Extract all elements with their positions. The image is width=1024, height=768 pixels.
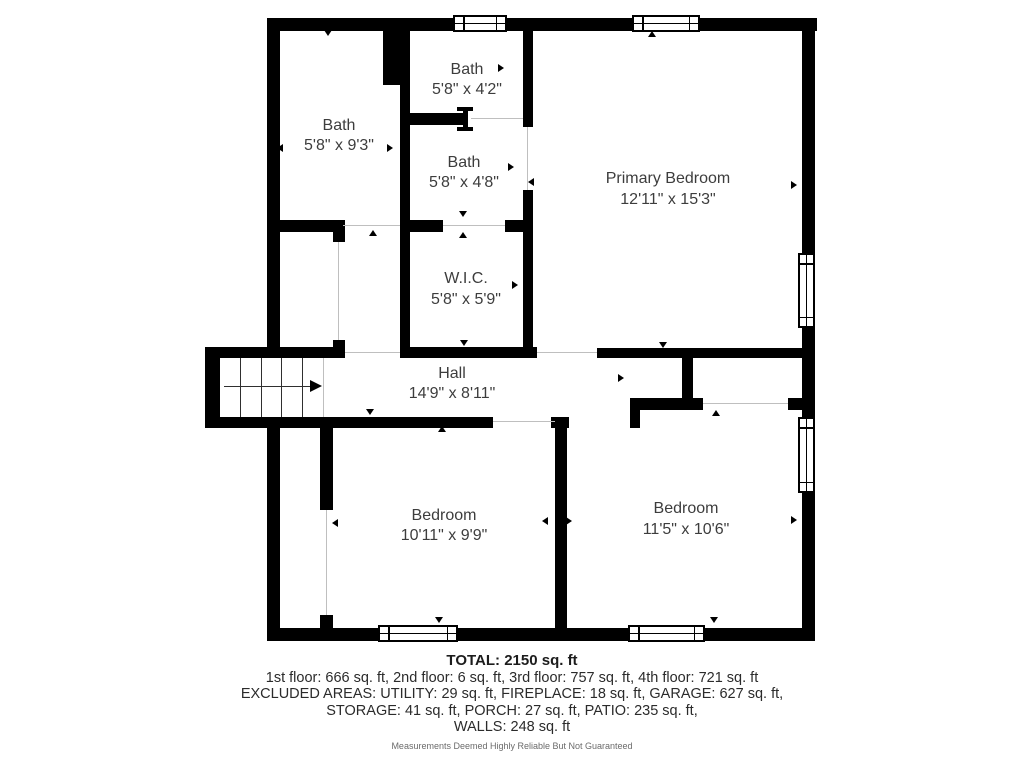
room-dimensions: 10'11" x 9'9" [364, 526, 524, 546]
door-threshold-line [345, 352, 400, 353]
room-name: Bath [387, 60, 547, 80]
room-name: W.I.C. [386, 268, 546, 289]
window-pane-line [380, 633, 456, 634]
room-dimensions: 5'8" x 4'8" [384, 173, 544, 193]
room-label-bedroom-right: Bedroom 11'5" x 10'6" [606, 498, 766, 540]
room-dimensions: 5'8" x 5'9" [386, 289, 546, 310]
stair-direction-arrow-icon [310, 380, 322, 392]
room-name: Bedroom [606, 498, 766, 519]
window-pane-line [630, 633, 703, 634]
room-name: Hall [372, 364, 532, 384]
stair-edge-line [323, 358, 324, 417]
door-threshold-line [703, 403, 788, 404]
arrow-marker-icon [791, 181, 797, 189]
window-frame-line [447, 627, 449, 640]
room-label-hall: Hall 14'9" x 8'11" [372, 364, 532, 404]
arrow-marker-icon [369, 230, 377, 236]
wall-left-upper [267, 18, 280, 347]
arrow-marker-icon [435, 617, 443, 623]
arrow-marker-icon [366, 409, 374, 415]
door-threshold-line [343, 225, 400, 226]
wall-bedroom-bl-west [320, 420, 333, 510]
door-jamb-bar [463, 107, 468, 131]
window-frame-line [496, 17, 498, 30]
wall-right [802, 18, 815, 641]
arrow-marker-icon [618, 374, 624, 382]
room-dimensions: 14'9" x 8'11" [372, 384, 532, 404]
window-frame-line [689, 17, 691, 30]
door-threshold-line [537, 352, 597, 353]
room-label-bedroom-left: Bedroom 10'11" x 9'9" [364, 506, 524, 546]
door-threshold-line [338, 242, 339, 340]
door-threshold-line [471, 118, 523, 119]
room-dimensions: 5'8" x 4'2" [387, 80, 547, 100]
window-symbol [798, 417, 815, 493]
window-symbol [378, 625, 458, 642]
excluded-areas-text-3: WALLS: 248 sq. ft [0, 719, 1024, 735]
wall-closet-br-south [630, 398, 703, 410]
arrow-marker-icon [542, 517, 548, 525]
staircase [220, 358, 323, 417]
arrow-marker-icon [648, 31, 656, 37]
area-summary: TOTAL: 2150 sq. ft 1st floor: 666 sq. ft… [0, 652, 1024, 751]
door-threshold-line [443, 225, 505, 226]
room-dimensions: 11'5" x 10'6" [606, 519, 766, 540]
wall-closet-jamb-top [333, 220, 345, 242]
arrow-marker-icon [710, 617, 718, 623]
wall-stair-west [205, 347, 220, 428]
room-label-bath-middle: Bath 5'8" x 4'8" [384, 153, 544, 193]
window-frame-line [638, 627, 640, 640]
room-label-bath-left: Bath 5'8" x 9'3" [259, 116, 419, 156]
stair-tread-line [302, 358, 303, 417]
wall-closet-jamb-bottom [333, 340, 345, 358]
window-symbol [453, 15, 507, 32]
window-symbol [628, 625, 705, 642]
door-threshold-line [326, 510, 327, 615]
room-name: Bath [259, 116, 419, 136]
arrow-marker-icon [459, 211, 467, 217]
floor-plan: Bath 5'8" x 9'3" Bath 5'8" x 4'2" Bath 5… [0, 0, 1024, 768]
arrow-marker-icon [324, 30, 332, 36]
arrow-marker-icon [459, 232, 467, 238]
stair-direction-line [224, 386, 310, 387]
window-symbol [632, 15, 700, 32]
wall-bath-wic-west [403, 220, 443, 232]
room-dimensions: 12'11" x 15'3" [568, 189, 768, 210]
window-frame-line [800, 427, 813, 429]
stair-tread-line [240, 358, 241, 417]
arrow-marker-icon [460, 340, 468, 346]
window-frame-line [642, 17, 644, 30]
arrow-marker-icon [566, 517, 572, 525]
wall-bottom [267, 628, 815, 641]
room-name: Primary Bedroom [568, 168, 768, 189]
arrow-marker-icon [659, 342, 667, 348]
arrow-marker-icon [438, 426, 446, 432]
window-frame-line [800, 482, 813, 484]
room-label-wic: W.I.C. 5'8" x 5'9" [386, 268, 546, 310]
window-frame-line [800, 317, 813, 319]
wall-vestibule-west-stub [630, 398, 640, 428]
arrow-marker-icon [332, 519, 338, 527]
arrow-marker-icon [791, 516, 797, 524]
room-name: Bedroom [364, 506, 524, 526]
window-frame-line [694, 627, 696, 640]
window-symbol [798, 253, 815, 328]
room-label-primary-bedroom: Primary Bedroom 12'11" x 15'3" [568, 168, 768, 210]
room-label-bath-top: Bath 5'8" x 4'2" [387, 60, 547, 100]
wall-hall-north-east [597, 348, 802, 358]
wall-left-lower [267, 417, 280, 641]
door-threshold-line [493, 421, 555, 422]
wall-top [267, 18, 817, 31]
window-frame-line [388, 627, 390, 640]
window-pane-line [806, 255, 807, 326]
wall-closet-br-stub [788, 398, 802, 410]
disclaimer-text: Measurements Deemed Highly Reliable But … [0, 741, 1024, 751]
excluded-areas-text-1: EXCLUDED AREAS: UTILITY: 29 sq. ft, FIRE… [0, 686, 1024, 702]
stair-tread-line [281, 358, 282, 417]
wall-stair-north [205, 347, 345, 358]
room-name: Bath [384, 153, 544, 173]
excluded-areas-text-2: STORAGE: 41 sq. ft, PORCH: 27 sq. ft, PA… [0, 703, 1024, 719]
total-area-text: TOTAL: 2150 sq. ft [0, 652, 1024, 670]
window-frame-line [463, 17, 465, 30]
window-pane-line [806, 419, 807, 491]
wall-wic-south [400, 347, 537, 358]
stair-tread-line [261, 358, 262, 417]
arrow-marker-icon [712, 410, 720, 416]
wall-bedroom-bl-west-stub [320, 615, 333, 628]
floor-areas-text: 1st floor: 666 sq. ft, 2nd floor: 6 sq. … [0, 670, 1024, 686]
wall-hall-south-west [205, 417, 493, 428]
window-frame-line [800, 263, 813, 265]
